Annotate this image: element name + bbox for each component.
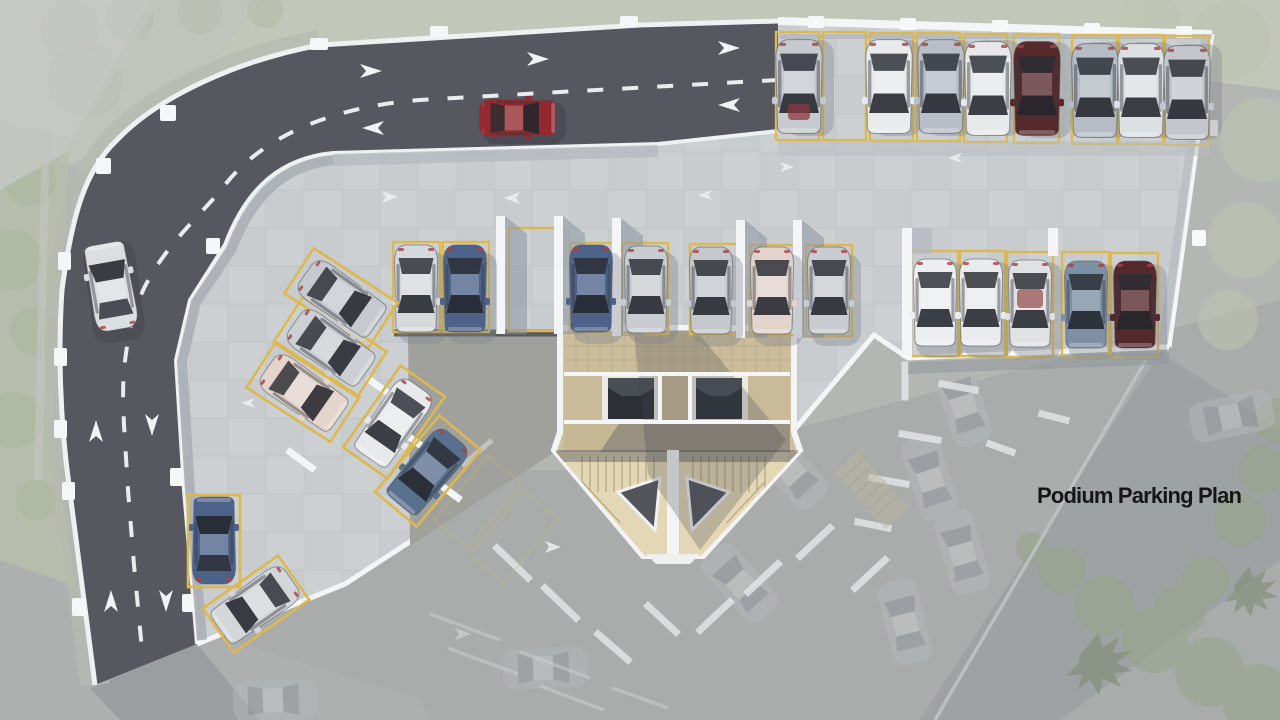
svg-text:Podium Parking Plan: Podium Parking Plan <box>1037 483 1242 508</box>
